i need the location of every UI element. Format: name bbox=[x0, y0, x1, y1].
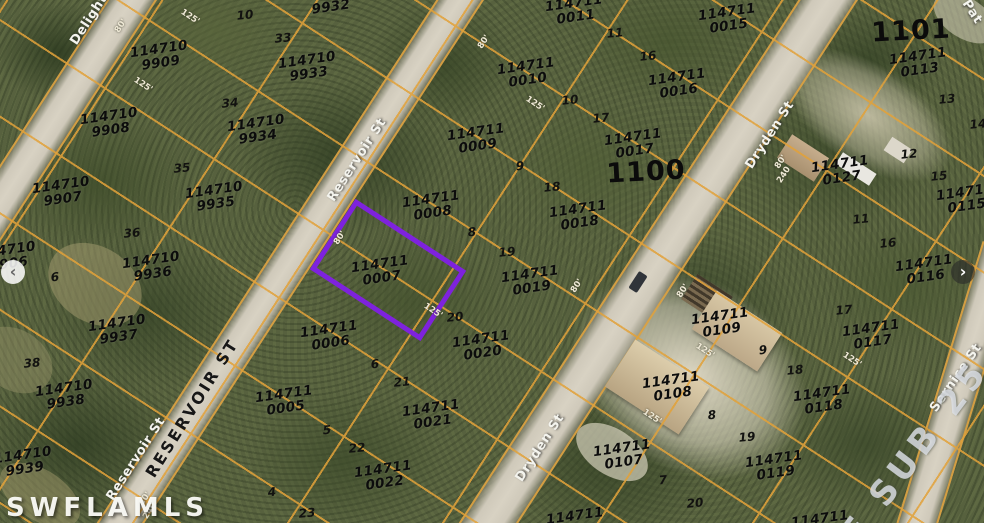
prev-photo-button[interactable]: ‹ bbox=[1, 260, 25, 284]
parcel-grid-lines bbox=[0, 0, 984, 523]
aerial-parcel-map[interactable]: 114710 99099932114710 9933114710 9908114… bbox=[0, 0, 984, 523]
next-photo-button[interactable]: › bbox=[951, 260, 975, 284]
mls-watermark: SWFLAMLS bbox=[6, 493, 209, 523]
